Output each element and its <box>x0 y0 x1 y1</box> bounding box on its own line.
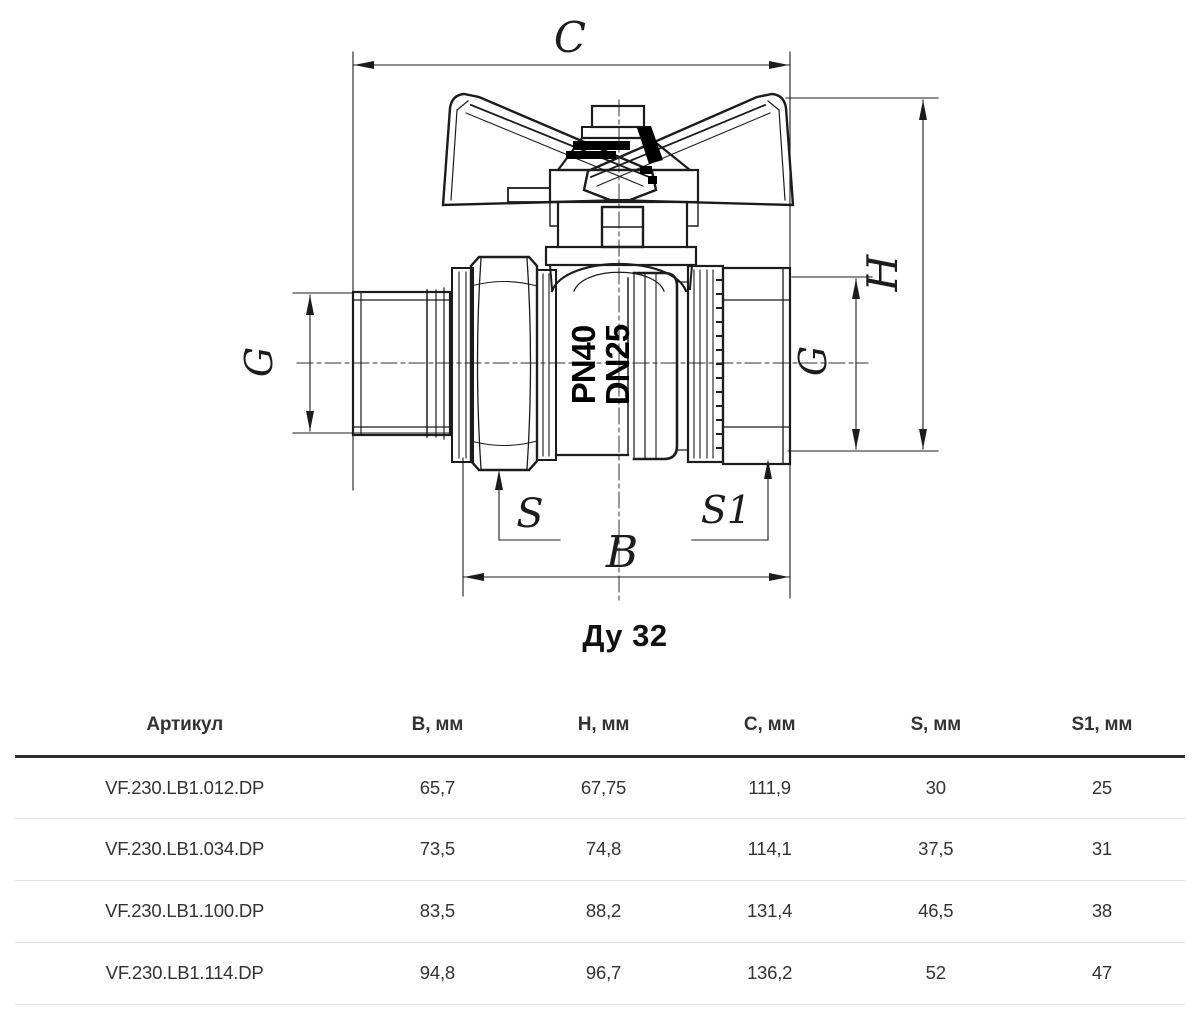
dim-label-c: C <box>554 13 586 62</box>
cell-b: 94,8 <box>354 942 520 1004</box>
cell-b: 73,5 <box>354 818 520 880</box>
cell-s: 46,5 <box>853 880 1019 942</box>
header-h: H, мм <box>520 695 686 756</box>
drawing-caption: Ду 32 <box>50 618 1200 654</box>
cell-s1: 31 <box>1019 818 1185 880</box>
table-row: VF.230.LB1.034.DP 73,5 74,8 114,1 37,5 3… <box>15 818 1185 880</box>
product-drawing-page: PN40 DN25 <box>0 0 1200 1032</box>
hub-shading <box>566 126 663 184</box>
cell-h: 74,8 <box>520 818 686 880</box>
marking-line2: DN25 <box>599 324 636 405</box>
body-marking: PN40 DN25 <box>565 324 636 405</box>
table-row: VF.230.LB1.012.DP 65,7 67,75 111,9 30 25 <box>15 756 1185 818</box>
cell-h: 67,75 <box>520 756 686 818</box>
dim-label-s: S <box>516 491 543 537</box>
dim-label-h: H <box>858 253 907 292</box>
cell-s: 30 <box>853 756 1019 818</box>
header-s1: S1, мм <box>1019 695 1185 756</box>
cell-b: 65,7 <box>354 756 520 818</box>
valve-technical-drawing: PN40 DN25 <box>0 0 1200 608</box>
dim-label-g-right: G <box>791 346 835 376</box>
table-row: VF.230.LB1.100.DP 83,5 88,2 131,4 46,5 3… <box>15 880 1185 942</box>
dim-label-g-left: G <box>237 347 281 377</box>
header-c: C, мм <box>687 695 853 756</box>
cell-s: 52 <box>853 942 1019 1004</box>
cell-s1: 38 <box>1019 880 1185 942</box>
valve-drawing-svg: PN40 DN25 <box>0 0 1200 608</box>
header-b: B, мм <box>354 695 520 756</box>
cell-article: VF.230.LB1.012.DP <box>15 756 354 818</box>
cell-s: 37,5 <box>853 818 1019 880</box>
cell-article: VF.230.LB1.100.DP <box>15 880 354 942</box>
cell-h: 96,7 <box>520 942 686 1004</box>
cell-h: 88,2 <box>520 880 686 942</box>
cell-c: 114,1 <box>687 818 853 880</box>
table-row: VF.230.LB1.114.DP 94,8 96,7 136,2 52 47 <box>15 942 1185 1004</box>
cell-c: 136,2 <box>687 942 853 1004</box>
cell-c: 131,4 <box>687 880 853 942</box>
header-s: S, мм <box>853 695 1019 756</box>
cell-s1: 25 <box>1019 756 1185 818</box>
marking-line1: PN40 <box>565 326 602 405</box>
cell-article: VF.230.LB1.034.DP <box>15 818 354 880</box>
cell-b: 83,5 <box>354 880 520 942</box>
table-header-row: Артикул B, мм H, мм C, мм S, мм S1, мм <box>15 695 1185 756</box>
dimensions-table: Артикул B, мм H, мм C, мм S, мм S1, мм V… <box>15 695 1185 1005</box>
dim-label-s1: S1 <box>701 488 751 532</box>
dim-label-b: B <box>605 527 638 578</box>
cell-c: 111,9 <box>687 756 853 818</box>
cell-article: VF.230.LB1.114.DP <box>15 942 354 1004</box>
header-article: Артикул <box>15 695 354 756</box>
spec-table-wrap: Артикул B, мм H, мм C, мм S, мм S1, мм V… <box>15 695 1185 1005</box>
cell-s1: 47 <box>1019 942 1185 1004</box>
valve-handle-group <box>443 94 793 289</box>
